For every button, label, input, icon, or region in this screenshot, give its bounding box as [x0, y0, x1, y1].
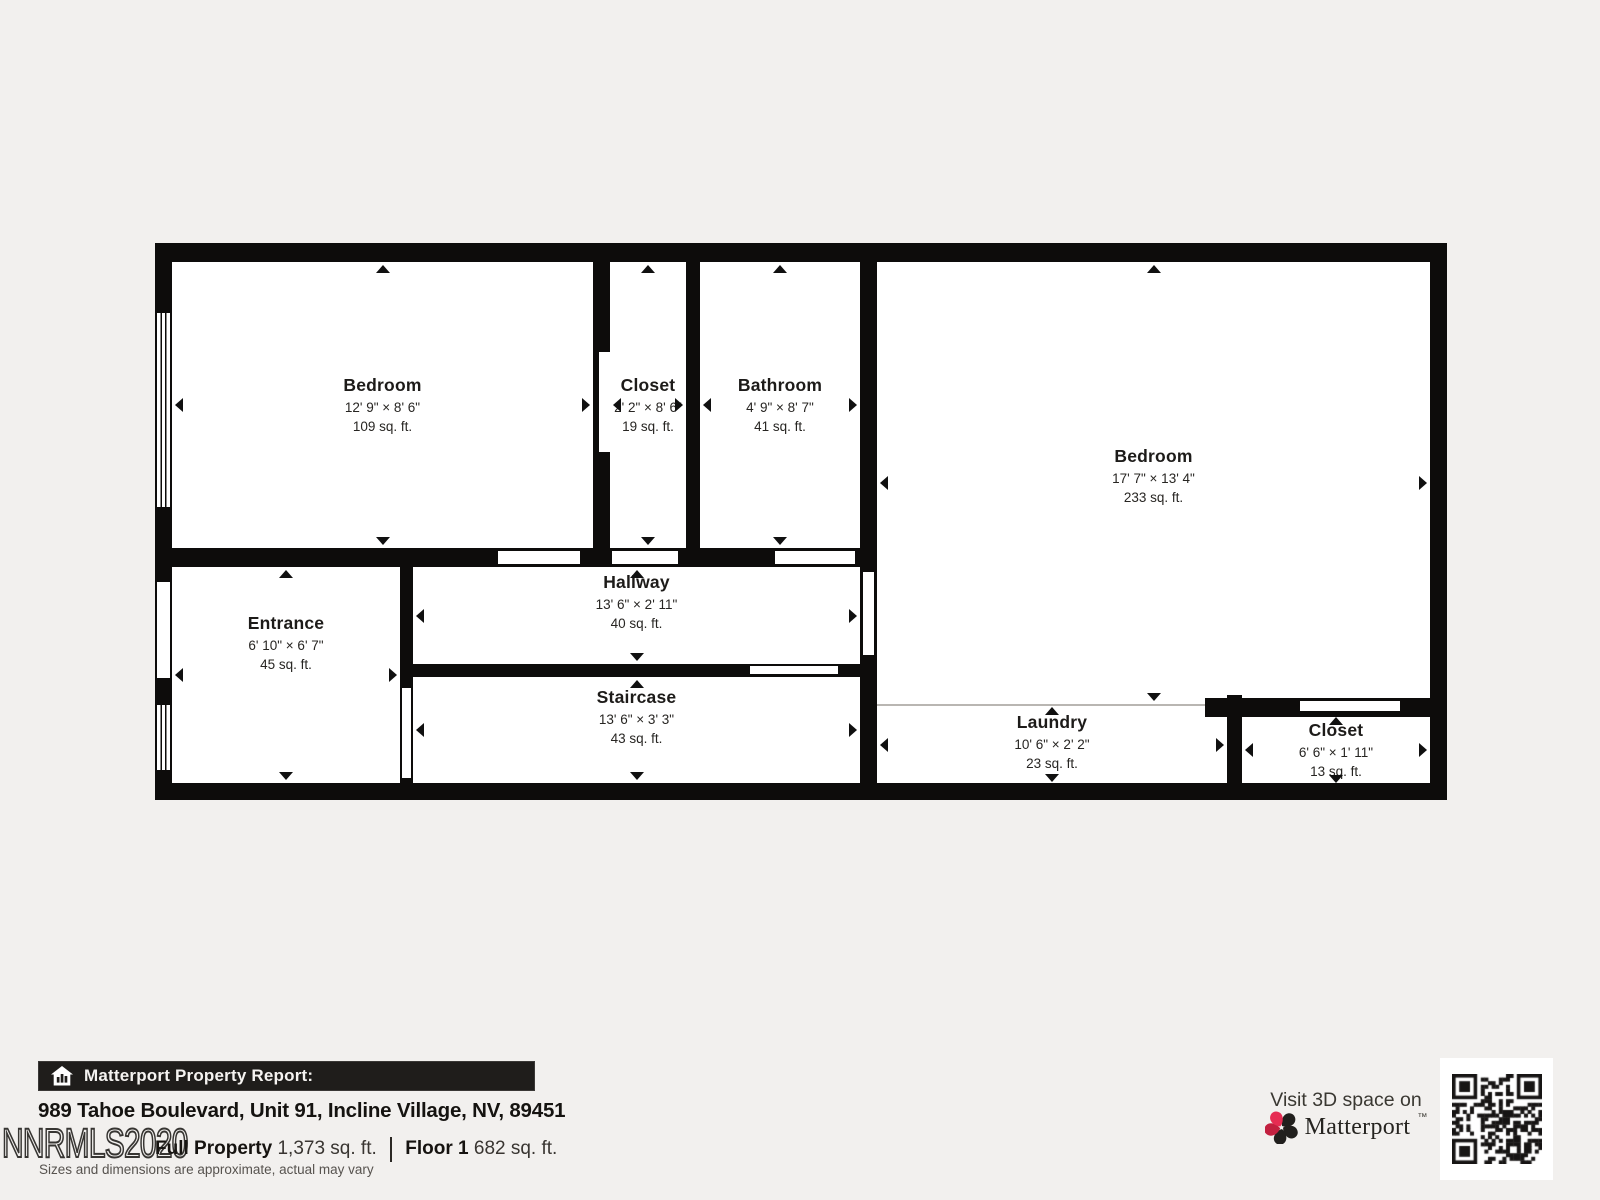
- property-stats: Full Property 1,373 sq. ft. Floor 1 682 …: [155, 1135, 557, 1163]
- room-dimensions: 4' 9" × 8' 7": [738, 398, 822, 417]
- measure-arrow-up-icon: [376, 265, 390, 273]
- room-label: Staircase 13' 6" × 3' 3" 43 sq. ft.: [597, 687, 677, 748]
- room-dimensions: 6' 10" × 6' 7": [248, 636, 325, 655]
- room-dimensions: 2' 2" × 8' 6": [614, 398, 682, 417]
- room-dimensions: 6' 6" × 1' 11": [1299, 743, 1373, 762]
- room-bedroom-right: Bedroom 17' 7" × 13' 4" 233 sq. ft.: [877, 262, 1430, 704]
- door-hallway-bedroom: [863, 572, 874, 655]
- room-label: Closet 2' 2" × 8' 6" 19 sq. ft.: [614, 375, 682, 436]
- measure-arrow-left-icon: [1245, 743, 1253, 757]
- room-area: 41 sq. ft.: [738, 417, 822, 436]
- measure-arrow-up-icon: [641, 265, 655, 273]
- measure-arrow-down-icon: [1147, 693, 1161, 701]
- visit-3d-text: Visit 3D space on: [1255, 1089, 1437, 1112]
- room-label: Laundry 10' 6" × 2' 2" 23 sq. ft.: [1014, 712, 1089, 773]
- page: Bedroom 12' 9" × 8' 6" 109 sq. ft. Close…: [0, 0, 1600, 1200]
- room-name: Entrance: [248, 613, 325, 634]
- measure-arrow-up-icon: [630, 680, 644, 688]
- measure-arrow-up-icon: [630, 570, 644, 578]
- door-closet-hallway: [612, 551, 678, 564]
- measure-arrow-right-icon: [389, 668, 397, 682]
- room-name: Laundry: [1014, 712, 1089, 733]
- disclaimer-text: Sizes and dimensions are approximate, ac…: [39, 1162, 374, 1177]
- room-dimensions: 13' 6" × 3' 3": [597, 710, 677, 729]
- qr-code-pattern: [1452, 1074, 1542, 1164]
- room-label: Closet 6' 6" × 1' 11" 13 sq. ft.: [1299, 720, 1373, 781]
- qr-code: [1440, 1058, 1553, 1180]
- measure-arrow-right-icon: [675, 398, 683, 412]
- measure-arrow-up-icon: [1045, 707, 1059, 715]
- room-label: Bedroom 17' 7" × 13' 4" 233 sq. ft.: [1112, 446, 1195, 507]
- door-bathroom-hallway: [775, 551, 855, 564]
- measure-arrow-right-icon: [1216, 738, 1224, 752]
- measure-arrow-left-icon: [175, 668, 183, 682]
- room-closet-bottom: Closet 6' 6" × 1' 11" 13 sq. ft.: [1242, 717, 1430, 783]
- room-bedroom-left: Bedroom 12' 9" × 8' 6" 109 sq. ft.: [172, 262, 593, 548]
- room-area: 233 sq. ft.: [1112, 488, 1195, 507]
- measure-arrow-right-icon: [1419, 476, 1427, 490]
- measure-arrow-down-icon: [773, 537, 787, 545]
- measure-arrow-left-icon: [880, 738, 888, 752]
- room-entrance: Entrance 6' 10" × 6' 7" 45 sq. ft.: [172, 567, 400, 783]
- measure-arrow-left-icon: [175, 398, 183, 412]
- measure-arrow-left-icon: [416, 609, 424, 623]
- room-laundry: Laundry 10' 6" × 2' 2" 23 sq. ft.: [877, 706, 1227, 783]
- measure-arrow-right-icon: [582, 398, 590, 412]
- window-entrance: [157, 705, 170, 770]
- measure-arrow-right-icon: [849, 398, 857, 412]
- measure-arrow-right-icon: [849, 723, 857, 737]
- door-hallway-staircase: [750, 666, 838, 674]
- trademark-symbol: ™: [1417, 1112, 1427, 1123]
- room-bathroom: Bathroom 4' 9" × 8' 7" 41 sq. ft.: [700, 262, 860, 548]
- room-area: 43 sq. ft.: [597, 729, 677, 748]
- measure-arrow-left-icon: [703, 398, 711, 412]
- property-address: 989 Tahoe Boulevard, Unit 91, Incline Vi…: [38, 1099, 565, 1123]
- matterport-logo: Matterport ™: [1255, 1110, 1437, 1144]
- measure-arrow-down-icon: [630, 772, 644, 780]
- measure-arrow-down-icon: [1045, 774, 1059, 782]
- measure-arrow-up-icon: [1147, 265, 1161, 273]
- measure-arrow-down-icon: [279, 772, 293, 780]
- wall-top: [155, 243, 1447, 262]
- stats-separator: [390, 1137, 393, 1162]
- room-dimensions: 13' 6" × 2' 11": [596, 595, 678, 614]
- measure-arrow-up-icon: [773, 265, 787, 273]
- measure-arrow-down-icon: [376, 537, 390, 545]
- room-area: 40 sq. ft.: [596, 614, 678, 633]
- measure-arrow-down-icon: [630, 653, 644, 661]
- room-dimensions: 12' 9" × 8' 6": [343, 398, 421, 417]
- room-closet-top: Closet 2' 2" × 8' 6" 19 sq. ft.: [610, 262, 686, 548]
- floor-label: Floor 1: [405, 1138, 468, 1160]
- door-bedroom-hallway: [498, 551, 580, 564]
- window-bedroom-left: [157, 313, 170, 507]
- door-entrance-staircase: [402, 688, 411, 778]
- room-label: Bedroom 12' 9" × 8' 6" 109 sq. ft.: [343, 375, 421, 436]
- room-hallway: Hallway 13' 6" × 2' 11" 40 sq. ft.: [413, 567, 860, 664]
- measure-arrow-left-icon: [880, 476, 888, 490]
- room-name: Staircase: [597, 687, 677, 708]
- room-dimensions: 10' 6" × 2' 2": [1014, 735, 1089, 754]
- wall-closet-bathroom: [686, 260, 700, 567]
- room-name: Bedroom: [1112, 446, 1195, 467]
- wall-bottom: [155, 783, 1447, 800]
- measure-arrow-left-icon: [613, 398, 621, 412]
- room-staircase: Staircase 13' 6" × 3' 3" 43 sq. ft.: [413, 677, 860, 783]
- room-label: Entrance 6' 10" × 6' 7" 45 sq. ft.: [248, 613, 325, 674]
- measure-arrow-right-icon: [849, 609, 857, 623]
- floor-area: 682 sq. ft.: [474, 1138, 557, 1160]
- room-name: Closet: [614, 375, 682, 396]
- room-area: 23 sq. ft.: [1014, 754, 1089, 773]
- measure-arrow-up-icon: [1329, 717, 1343, 725]
- room-dimensions: 17' 7" × 13' 4": [1112, 469, 1195, 488]
- measure-arrow-down-icon: [1329, 775, 1343, 783]
- room-label: Bathroom 4' 9" × 8' 7" 41 sq. ft.: [738, 375, 822, 436]
- matterport-pinwheel-icon: [1265, 1111, 1298, 1144]
- room-name: Bathroom: [738, 375, 822, 396]
- floor-plan: Bedroom 12' 9" × 8' 6" 109 sq. ft. Close…: [155, 243, 1447, 800]
- room-area: 19 sq. ft.: [614, 417, 682, 436]
- matterport-wordmark: Matterport: [1305, 1110, 1411, 1144]
- wall-center-vertical: [860, 260, 877, 783]
- room-label: Hallway 13' 6" × 2' 11" 40 sq. ft.: [596, 572, 678, 633]
- full-property-label: Full Property: [155, 1138, 272, 1160]
- measure-arrow-right-icon: [1419, 743, 1427, 757]
- measure-arrow-down-icon: [641, 537, 655, 545]
- room-area: 45 sq. ft.: [248, 655, 325, 674]
- room-name: Bedroom: [343, 375, 421, 396]
- report-bar-title: Matterport Property Report:: [84, 1066, 313, 1086]
- full-property-area: 1,373 sq. ft.: [277, 1138, 376, 1160]
- house-chart-icon: [51, 1066, 73, 1086]
- measure-arrow-left-icon: [416, 723, 424, 737]
- door-entrance-exterior: [157, 582, 170, 678]
- room-area: 109 sq. ft.: [343, 417, 421, 436]
- measure-arrow-up-icon: [279, 570, 293, 578]
- report-title-bar: Matterport Property Report:: [38, 1061, 535, 1091]
